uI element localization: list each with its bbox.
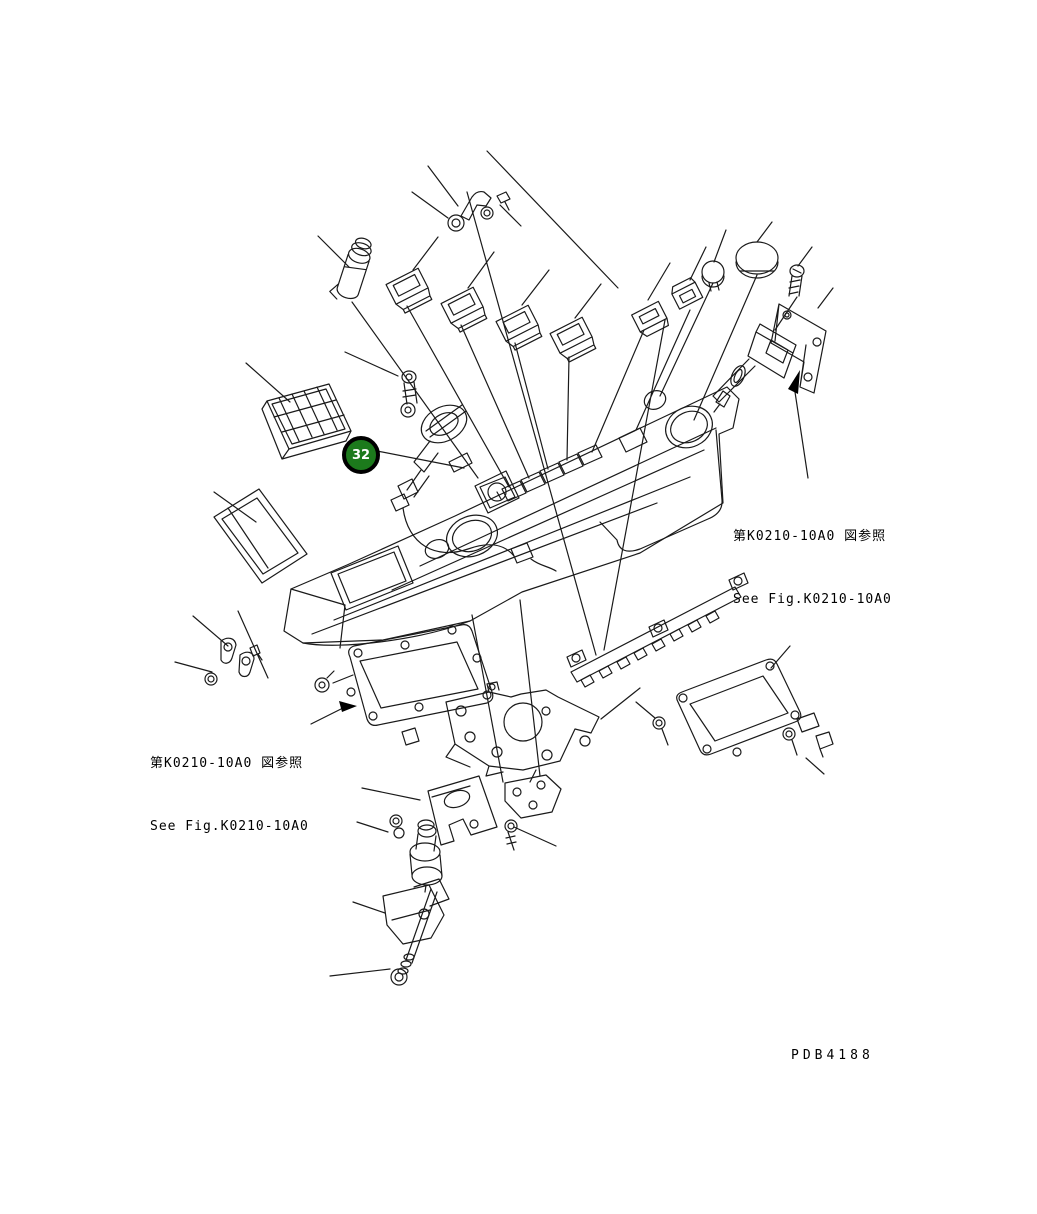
rocker-switch-4 [550, 317, 598, 364]
right-bracket-assembly [713, 304, 826, 412]
left-frame [214, 489, 307, 583]
lever-part [448, 192, 510, 231]
rocker-switch-1 [386, 268, 434, 315]
drawing-code: PDB4188 [791, 1048, 874, 1063]
rocker-switch-3 [496, 305, 544, 352]
connector-block-2 [669, 277, 703, 309]
rocker-switch-2 [441, 287, 489, 334]
callout-balloon-32[interactable]: 32 [342, 436, 380, 474]
gasket-plate [315, 625, 493, 745]
middle-plate [446, 682, 599, 776]
right-reference-arrow [788, 370, 800, 394]
screw-top-right [789, 265, 804, 296]
connector-block-1 [632, 301, 671, 338]
round-button [702, 261, 724, 291]
reference-right-jp: 第K0210-10A0 図参照 [733, 526, 892, 547]
console-body [284, 387, 739, 648]
reference-label-left: 第K0210-10A0 図参照 See Fig.K0210-10A0 [150, 711, 309, 858]
serrated-rail [567, 573, 748, 687]
reference-left-en: See Fig.K0210-10A0 [150, 816, 309, 837]
right-frame-plate [653, 659, 833, 757]
reference-left-jp: 第K0210-10A0 図参照 [150, 753, 309, 774]
reference-label-right: 第K0210-10A0 図参照 See Fig.K0210-10A0 [733, 484, 892, 631]
parts-diagram-page: 32 第K0210-10A0 図参照 See Fig.K0210-10A0 第K… [0, 0, 1037, 1214]
small-bracket [505, 775, 561, 850]
lighter-assembly [390, 776, 497, 892]
disc-cap [736, 242, 778, 278]
switch-cutouts [502, 428, 647, 501]
bottom-bracket [383, 879, 449, 985]
knob-part [328, 233, 375, 304]
dial-hole [659, 399, 719, 456]
screw-washer-middle [401, 371, 417, 417]
callout-number: 32 [352, 448, 370, 463]
grille-panel [262, 384, 351, 459]
reference-right-en: See Fig.K0210-10A0 [733, 589, 892, 610]
left-reference-arrow [339, 701, 357, 712]
